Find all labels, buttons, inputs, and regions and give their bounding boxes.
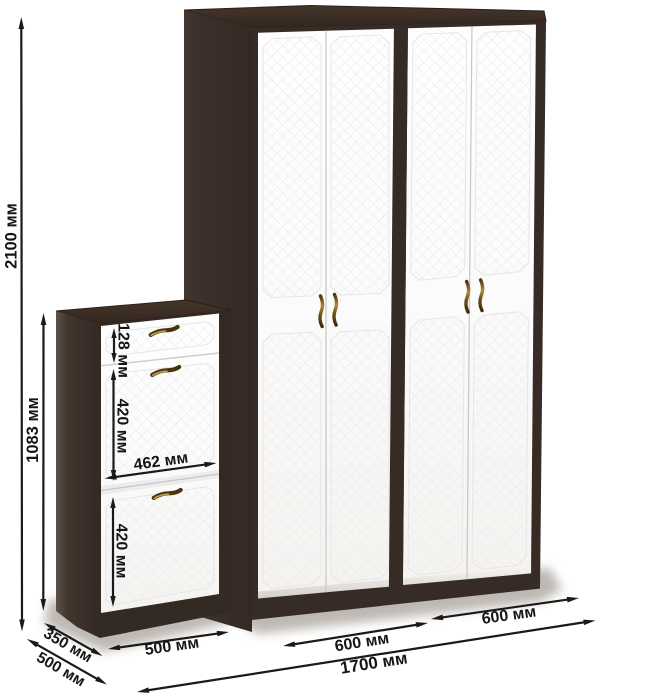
svg-text:1083 мм: 1083 мм <box>24 397 42 463</box>
svg-text:128 мм: 128 мм <box>114 323 131 378</box>
svg-text:420 мм: 420 мм <box>112 524 129 579</box>
svg-text:2100 мм: 2100 мм <box>2 203 20 269</box>
svg-text:420 мм: 420 мм <box>113 399 130 454</box>
